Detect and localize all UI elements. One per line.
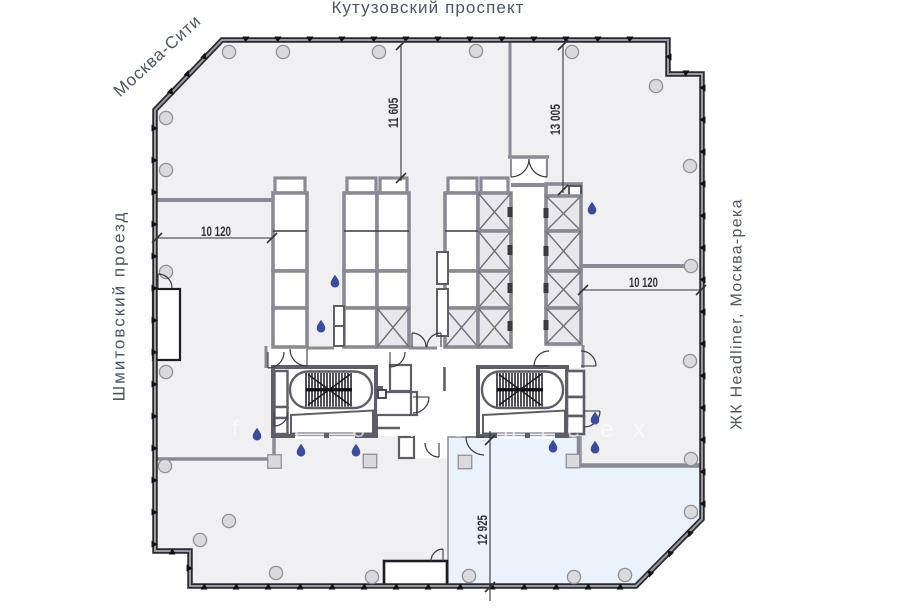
svg-text:11 605: 11 605 (385, 98, 401, 128)
svg-text:Кутузовский проспект: Кутузовский проспект (331, 0, 524, 17)
svg-text:Шмитовский проезд: Шмитовский проезд (110, 211, 129, 402)
svg-text:n: n (503, 416, 516, 443)
svg-text:e: e (567, 416, 580, 443)
svg-text:ЖК Headliner, Москва-река: ЖК Headliner, Москва-река (729, 198, 746, 430)
svg-text:e: e (452, 416, 465, 443)
svg-text:f: f (232, 416, 239, 443)
svg-text:x: x (633, 416, 645, 443)
svg-text:10 120: 10 120 (201, 223, 231, 239)
svg-text:t: t (540, 416, 547, 443)
svg-text:r: r (409, 416, 417, 443)
svg-text:10 120: 10 120 (629, 275, 658, 290)
svg-text:12 925: 12 925 (474, 515, 490, 545)
svg-text:e: e (600, 416, 613, 443)
svg-text:o: o (352, 416, 365, 443)
svg-text:13 005: 13 005 (547, 104, 563, 135)
svg-text:l: l (294, 416, 299, 443)
